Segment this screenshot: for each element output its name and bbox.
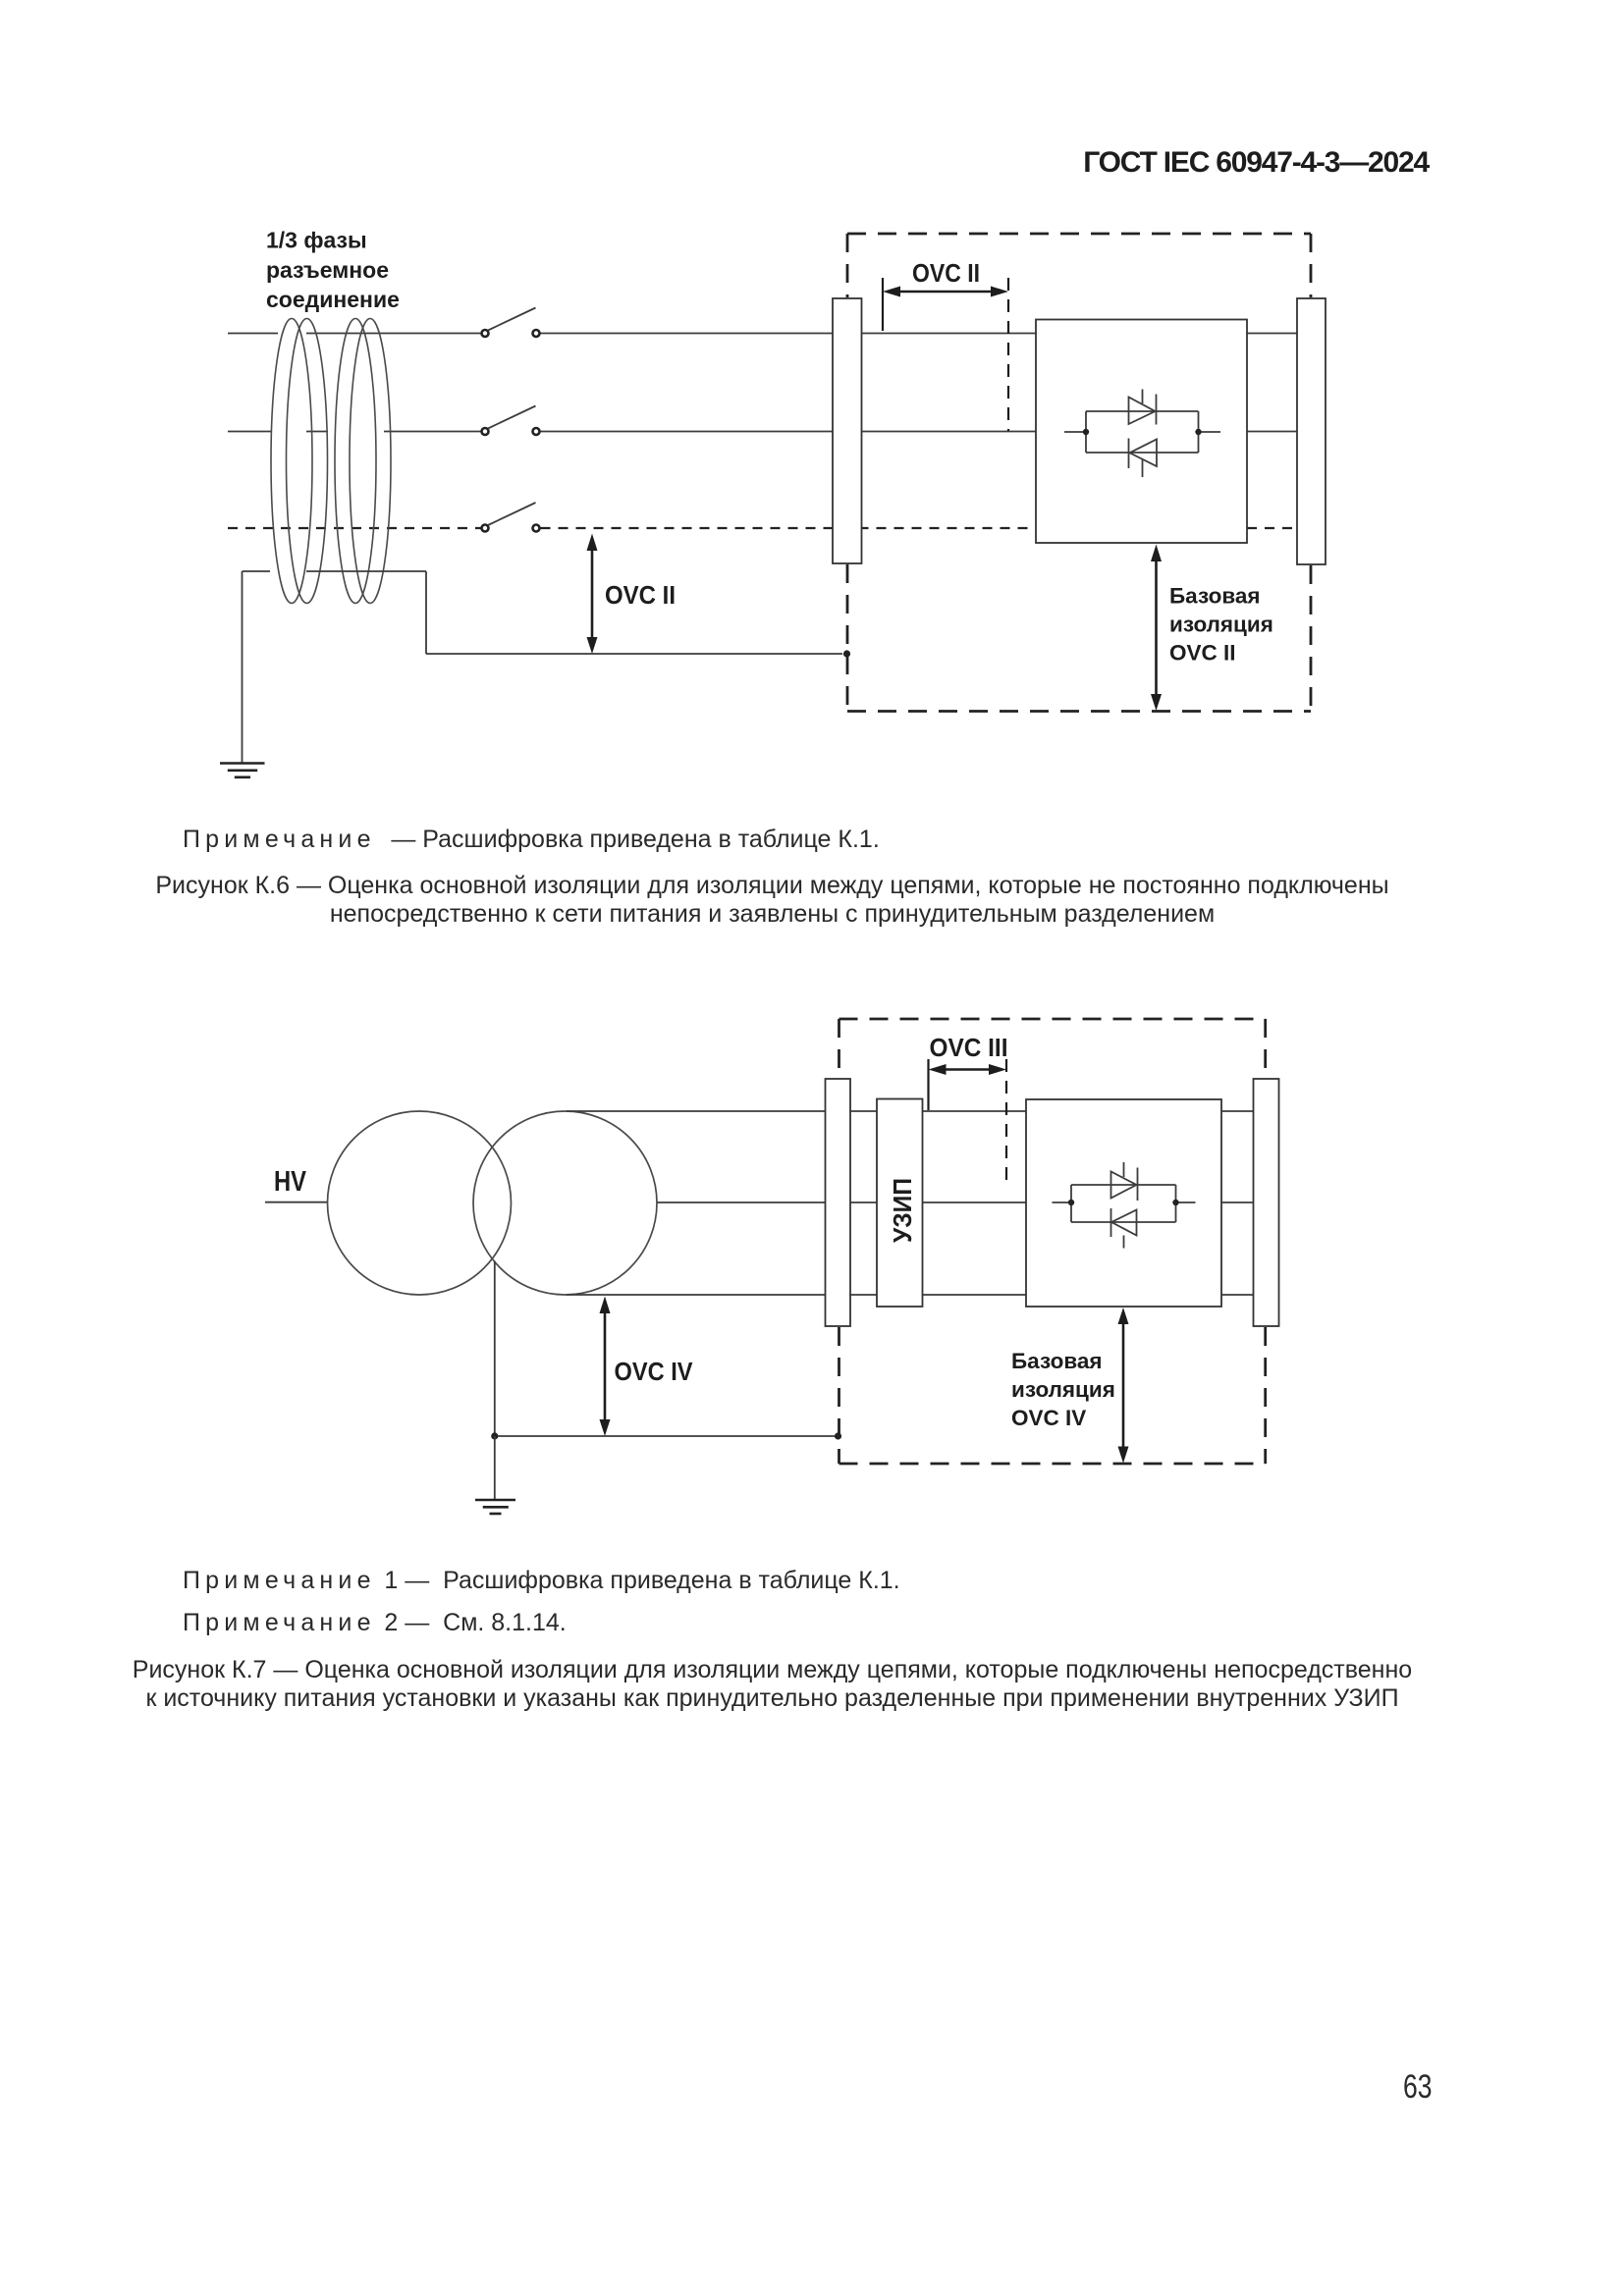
svg-text:изоляция: изоляция [1011, 1377, 1115, 1402]
svg-text:1/3 фазы: 1/3 фазы [266, 228, 367, 253]
svg-text:OVC II: OVC II [1169, 641, 1236, 666]
svg-text:изоляция: изоляция [1169, 613, 1273, 637]
svg-text:УЗИП: УЗИП [888, 1178, 917, 1243]
svg-text:Базовая: Базовая [1011, 1349, 1103, 1373]
svg-text:OVC II: OVC II [605, 580, 676, 610]
svg-text:Базовая: Базовая [1169, 584, 1261, 609]
svg-text:OVC III: OVC III [930, 1033, 1008, 1062]
svg-text:соединение: соединение [266, 287, 400, 312]
svg-text:OVC IV: OVC IV [1011, 1406, 1086, 1430]
svg-text:разъемное: разъемное [266, 257, 389, 283]
svg-text:OVC IV: OVC IV [615, 1357, 694, 1386]
svg-text:OVC II: OVC II [912, 258, 980, 288]
svg-text:HV: HV [274, 1166, 307, 1198]
